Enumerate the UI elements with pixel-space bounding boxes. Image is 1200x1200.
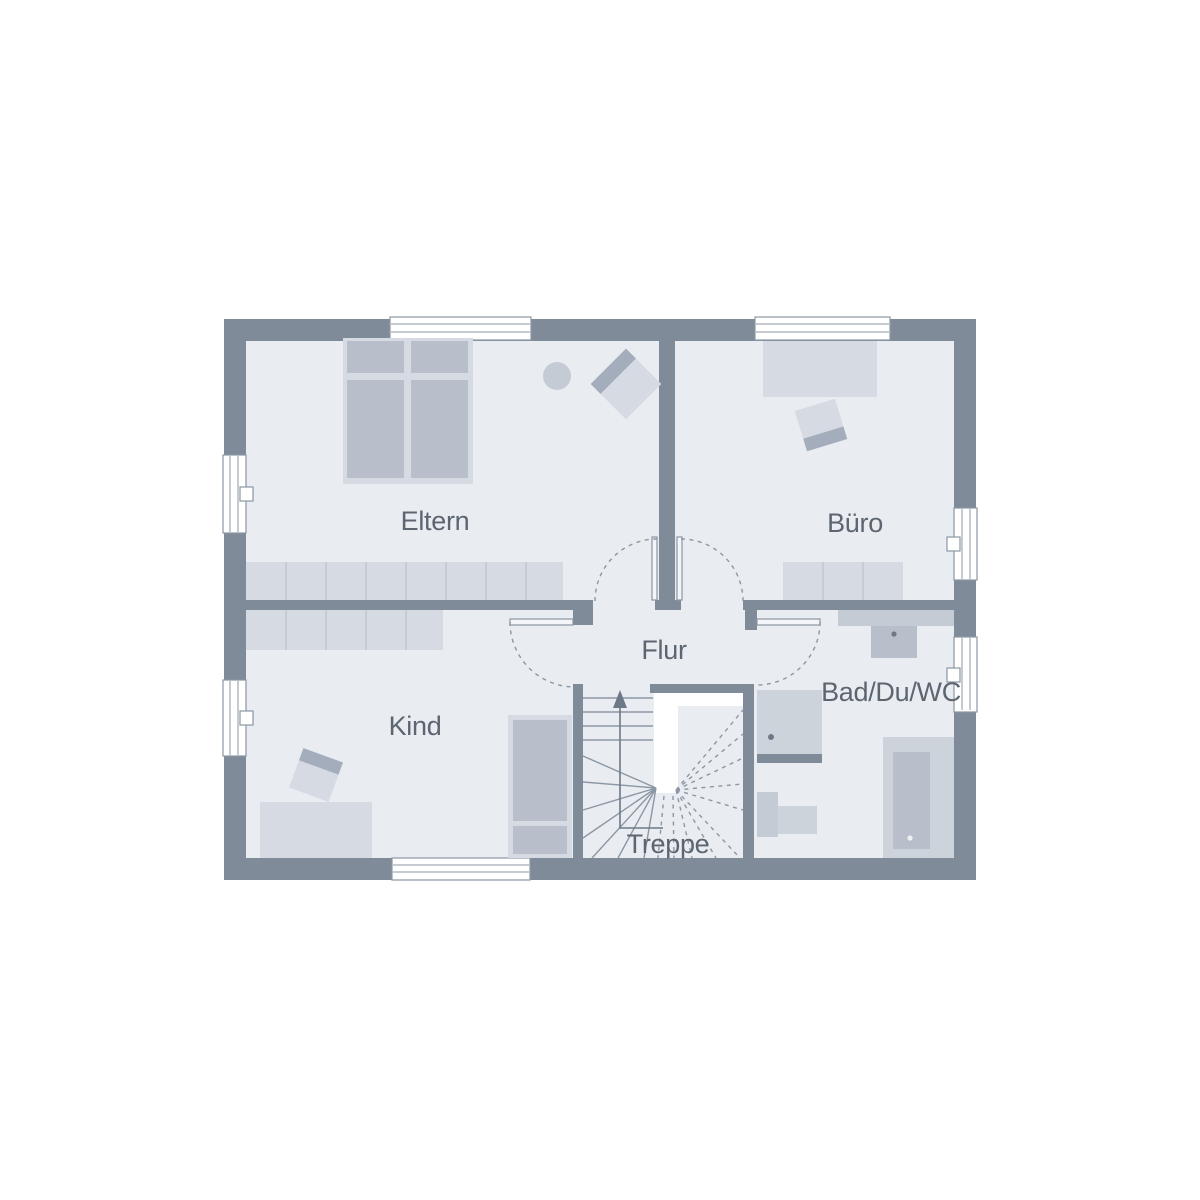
room-label-kind: Kind [389,711,442,741]
wall-eltern-buero [659,341,675,602]
stair-wall-left [573,684,583,858]
room-label-buero: Büro [827,508,883,538]
room-label-eltern: Eltern [401,506,470,536]
mattress [411,380,468,478]
pillow [513,826,567,854]
window-buero-top [755,317,890,340]
stair-wall-top [650,684,754,693]
door-jamb-bad [745,600,757,630]
window-kind-bottom [392,858,530,880]
pillow [411,341,468,373]
wall-cap-center [655,600,681,610]
wardrobe [246,610,443,650]
sideboard [783,562,903,600]
mattress [513,720,567,821]
pillow [347,341,404,373]
single-bed [508,715,572,858]
floor-plan: Eltern Büro Flur Kind Bad/Du/WC Treppe [0,0,1200,1200]
shower [757,690,822,754]
stair-void [654,693,678,793]
room-label-bad: Bad/Du/WC [821,677,961,707]
stair-wall-right [743,684,754,858]
wall-eltern-kind [246,600,593,610]
plant [543,362,571,390]
floor-plan-page: Eltern Büro Flur Kind Bad/Du/WC Treppe [0,0,1200,1200]
door-jamb-kind [573,600,593,625]
bathtub [883,737,954,858]
window-eltern-top [390,317,531,340]
desk [260,802,372,858]
room-label-flur: Flur [641,635,687,665]
wall-buero-bad [743,600,954,610]
double-bed [343,338,473,484]
mattress [347,380,404,478]
wardrobe [246,562,563,600]
vanity-counter [838,610,954,626]
sink [871,626,917,658]
desk [763,341,877,397]
room-label-treppe: Treppe [627,829,710,859]
